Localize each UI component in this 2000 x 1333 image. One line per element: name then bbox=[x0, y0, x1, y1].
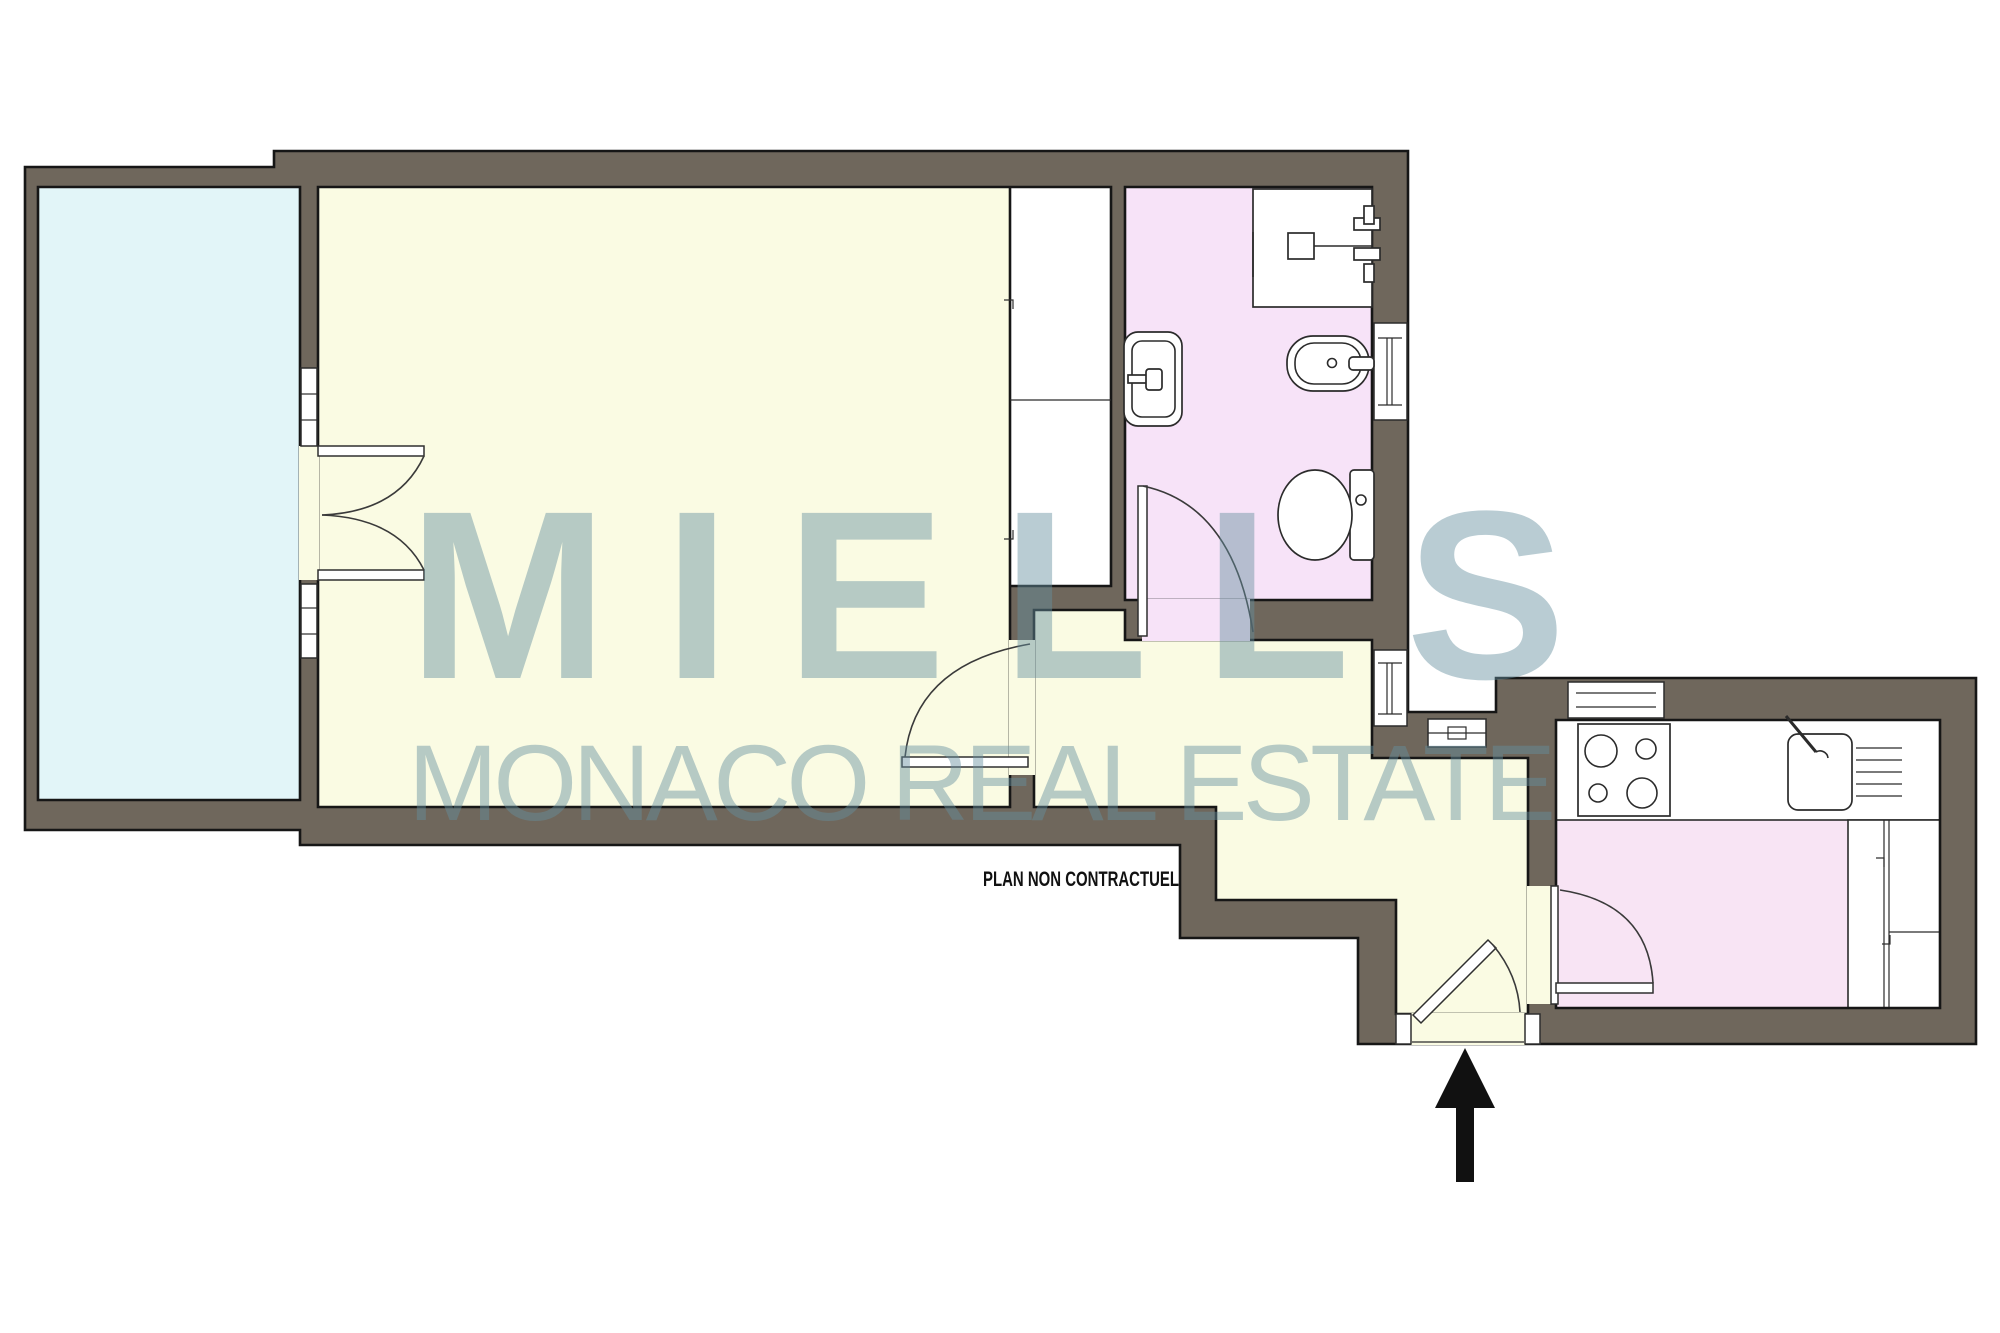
floor-plan-drawing: MIELLS MONACO REAL ESTATE PLAN NON CONTR… bbox=[0, 0, 2000, 1333]
kitchen-sink bbox=[1788, 734, 1852, 810]
kitchen-door-leaf bbox=[1556, 983, 1653, 993]
counter-right-run bbox=[1848, 820, 1940, 1008]
shower-valve-handle bbox=[1364, 206, 1374, 224]
terrace-floor bbox=[38, 187, 300, 800]
terrace-window-upper bbox=[301, 368, 317, 446]
french-door-opening bbox=[299, 446, 319, 580]
floor-plan-page: MIELLS MONACO REAL ESTATE PLAN NON CONTR… bbox=[0, 0, 2000, 1333]
shower-valve-handle bbox=[1364, 264, 1374, 282]
watermark-tagline: MONACO REAL ESTATE bbox=[408, 722, 1556, 843]
entrance-arrow-icon bbox=[1435, 1048, 1495, 1182]
toilet-tank bbox=[1350, 470, 1374, 560]
entrance-jamb-right bbox=[1525, 1014, 1540, 1044]
shower-head bbox=[1288, 233, 1314, 259]
kitchen-window bbox=[1568, 682, 1664, 718]
bidet-faucet bbox=[1349, 357, 1374, 370]
terrace-window-lower bbox=[301, 584, 317, 658]
shower-valve bbox=[1354, 248, 1380, 260]
french-door-leaf-top bbox=[318, 446, 424, 456]
washbasin-faucet-head bbox=[1146, 369, 1162, 390]
disclaimer-text: PLAN NON CONTRACTUEL bbox=[983, 868, 1179, 891]
entrance-jamb-left bbox=[1396, 1014, 1411, 1044]
entrance-opening bbox=[1411, 1013, 1525, 1045]
